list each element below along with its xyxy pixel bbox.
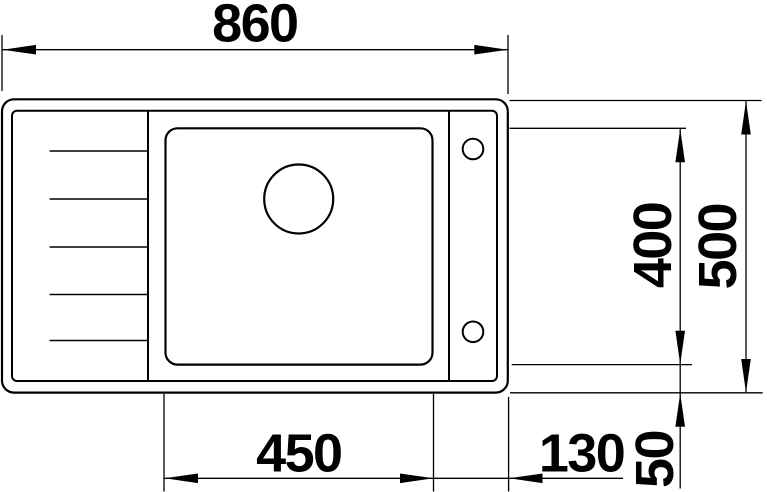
svg-text:50: 50 bbox=[625, 431, 685, 488]
svg-text:130: 130 bbox=[539, 424, 624, 484]
svg-text:450: 450 bbox=[256, 424, 341, 484]
svg-text:400: 400 bbox=[623, 203, 683, 288]
svg-text:500: 500 bbox=[688, 204, 748, 289]
svg-text:860: 860 bbox=[212, 0, 297, 53]
